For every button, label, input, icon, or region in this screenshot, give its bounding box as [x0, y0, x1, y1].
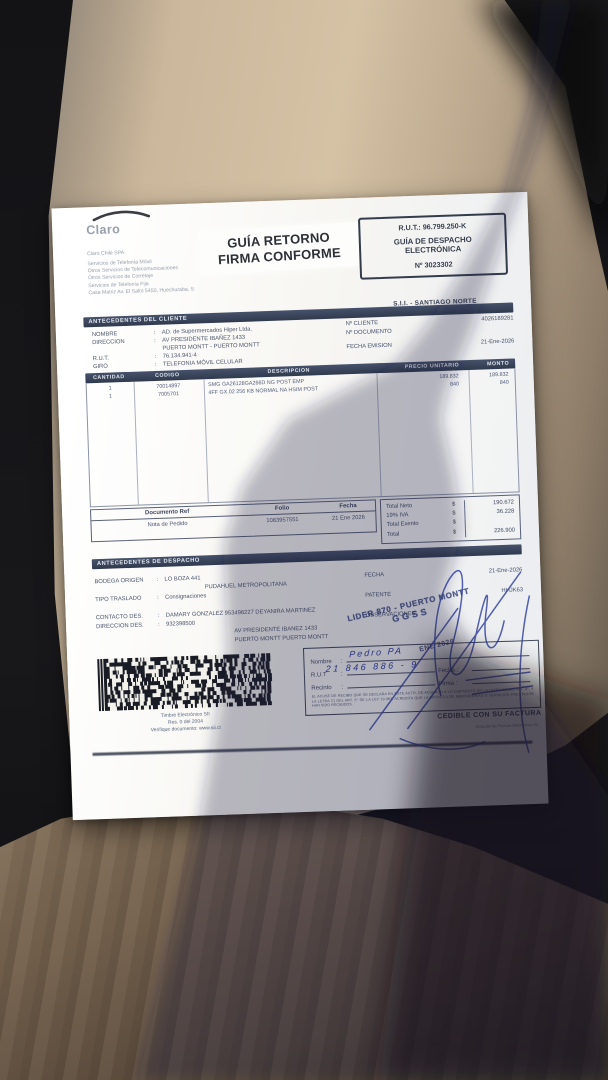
firma-signature-line	[472, 673, 530, 684]
item-cantidad: 1	[87, 393, 134, 402]
ndocumento-label: Nº DOCUMENTO	[346, 328, 392, 339]
fecha-signature-line	[472, 660, 530, 671]
total-label: Total	[387, 528, 453, 540]
issuer-rut: R.U.T.: 96.799.250-K	[363, 220, 501, 234]
return-stamp-sticker: GUÍA RETORNO FIRMA CONFORME	[198, 222, 360, 276]
ref-doc-value: Nota de Pedido	[92, 519, 244, 530]
provider-footer: Solución de Factura Electrónica de	[310, 722, 538, 735]
item-codigo: 7005701	[134, 390, 204, 399]
client-giro-label: GIRO	[85, 361, 155, 372]
direccion-des-label: DIRECCION DES.	[94, 621, 158, 632]
recinto-signature-line	[347, 676, 436, 688]
ref-folio-label: Folio	[243, 504, 321, 513]
fabric-folds	[0, 796, 608, 1080]
clothing-fabric	[0, 796, 608, 1080]
claro-logo: Claro	[86, 222, 120, 237]
document-number: Nº 3023302	[365, 258, 503, 272]
company-info: Claro Chile SPA Servicios de Telefonía M…	[87, 248, 194, 298]
document-type: GUÍA DE DESPACHO ELECTRÓNICA	[372, 234, 495, 256]
client-right-column: Nº CLIENTE 4026189281 Nº DOCUMENTO FECHA…	[346, 314, 515, 352]
paper-fold-shadow	[93, 741, 533, 756]
item-monto: 840	[467, 379, 515, 388]
dispatch-guide-document: Claro Claro Chile SPA Servicios de Telef…	[51, 192, 548, 820]
dispatch-fecha-label: FECHA	[364, 571, 384, 581]
totals-box: Total Neto $ 190.672 19% IVA $ 36.228 To…	[380, 494, 521, 544]
ref-fecha-label: Fecha	[321, 502, 375, 510]
rut-box: R.U.T.: 96.799.250-K GUÍA DE DESPACHO EL…	[358, 213, 508, 280]
patente-label: PATENTE	[365, 591, 391, 601]
recv-fecha-label: Fecha :	[438, 667, 472, 674]
ref-fecha-value: 21 Ene 2026	[321, 514, 375, 522]
photo-scene: Claro Claro Chile SPA Servicios de Telef…	[0, 0, 608, 1080]
recv-recinto-label: Recinto	[311, 685, 341, 692]
barcode-captions: Timbre Electrónico SII Res. 0 del 2004 V…	[99, 709, 272, 735]
recv-firma-label: Firma :	[439, 680, 473, 687]
barcode-block: Timbre Electrónico SII Res. 0 del 2004 V…	[97, 653, 272, 735]
fecha-emision-value: 21-Ene-2026	[481, 337, 515, 347]
ncliente-value: 4026189281	[481, 314, 514, 324]
pen-mark-top	[94, 211, 149, 220]
ref-folio-value: 1083957551	[243, 516, 321, 525]
dispatch-fecha-value: 21-Ene-2026	[489, 566, 523, 576]
bodega-label: BODEGA ORIGEN	[92, 576, 156, 587]
total-value: 226.900	[465, 526, 515, 537]
fecha-emision-label: FECHA EMISION	[346, 342, 392, 353]
pdf417-barcode	[97, 653, 271, 711]
items-body: 1 70014897 SMG GA26128GA266D NG POST EMP…	[86, 368, 520, 507]
items-table: CANTIDAD CODIGO DESCRIPCION PRECIO UNITA…	[85, 358, 519, 507]
tipo-label: TIPO TRASLADO	[93, 594, 157, 605]
